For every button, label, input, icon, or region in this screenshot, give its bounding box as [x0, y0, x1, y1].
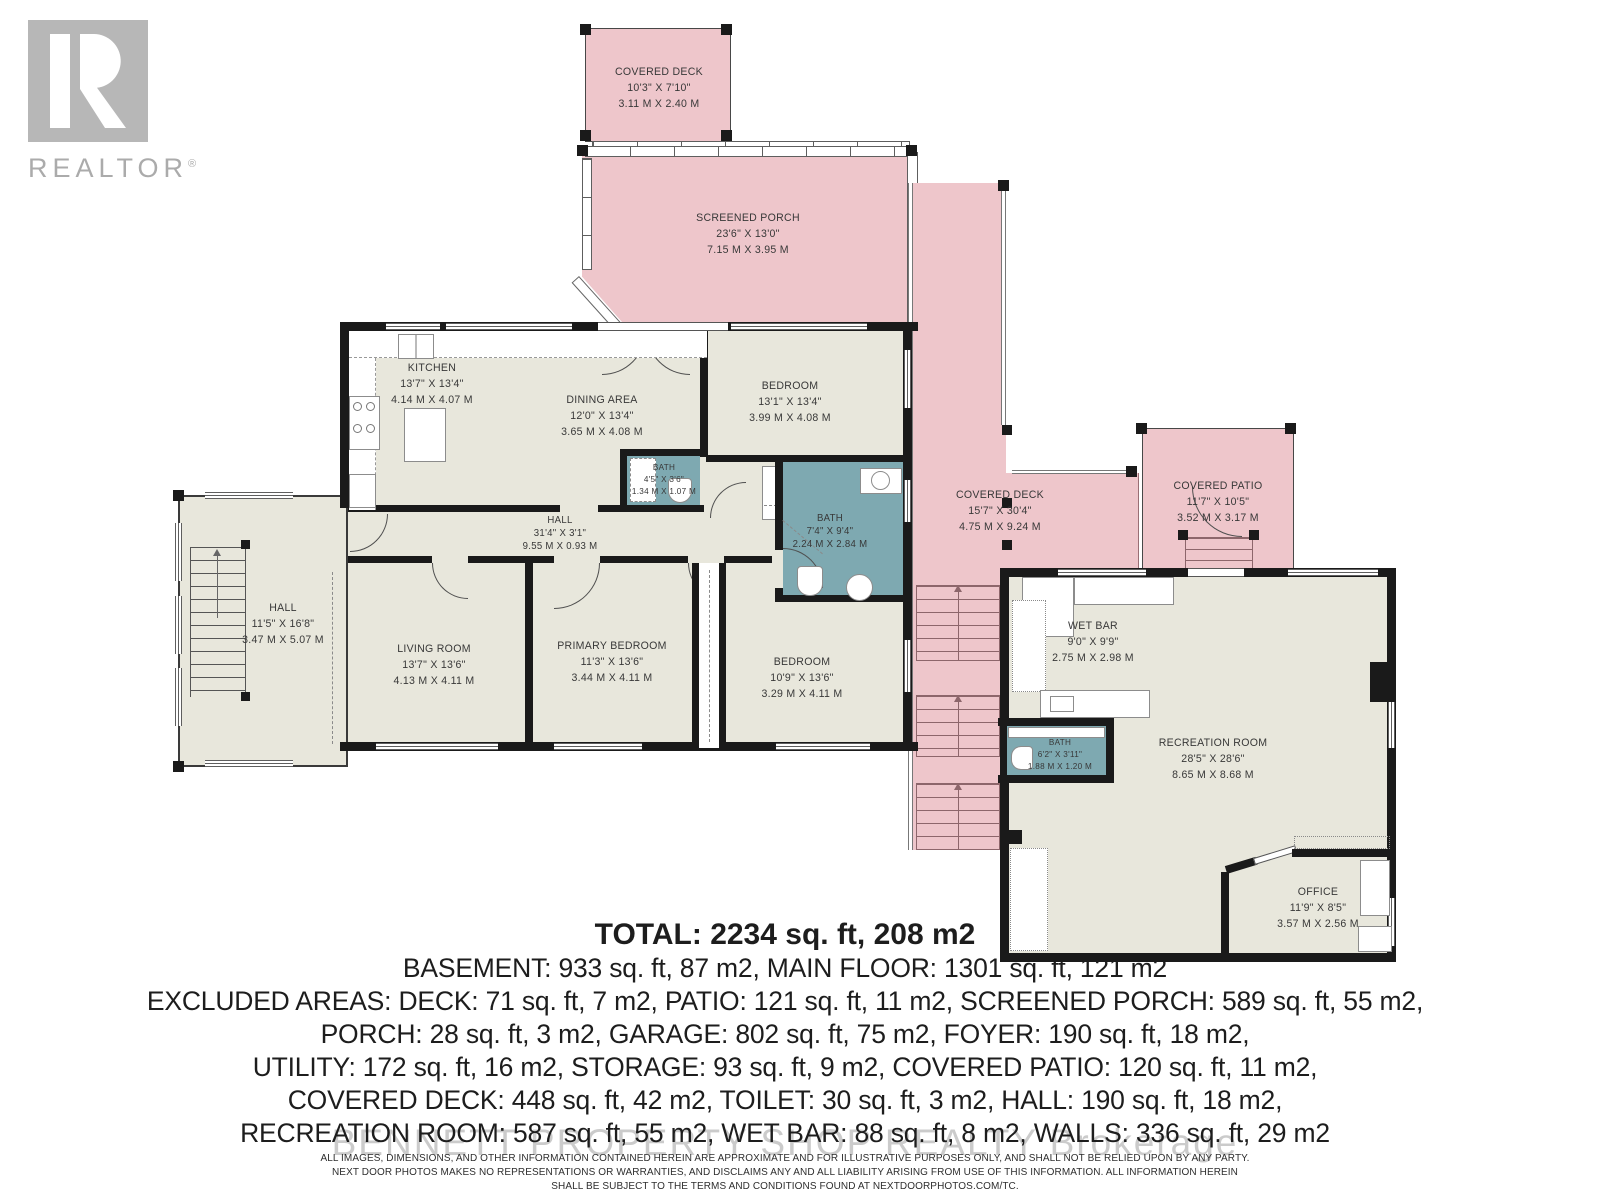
newel-block: [241, 540, 250, 549]
stair-direction-line: [958, 783, 959, 850]
window: [1288, 569, 1378, 576]
room-label-office: OFFICE11'9" X 8'5"3.57 M X 2.56 M: [1277, 884, 1359, 932]
bar-sink-icon: [1050, 696, 1074, 712]
stair-up-arrow-icon: [954, 585, 962, 592]
desk: [1360, 860, 1390, 916]
window: [904, 640, 911, 692]
room-label-kitchen: KITCHEN13'7" X 13'4"4.14 M X 4.07 M: [391, 360, 473, 408]
window-band: [585, 146, 915, 157]
room-label-bath-basement: BATH6'2" X 3'11"1.88 M X 1.20 M: [1028, 736, 1092, 772]
window: [175, 596, 182, 654]
corner-block: [998, 180, 1009, 191]
floor-plan: COVERED DECK10'3" X 7'10"3.11 M X 2.40 M…: [0, 0, 1600, 1200]
closet-rod-line: [709, 570, 710, 742]
kitchen-island: [404, 408, 446, 462]
corner-block: [1136, 423, 1147, 434]
patio-door-opening: [1188, 568, 1244, 577]
room-label-bath-small: BATH4'5" X 3'6"1.34 M X 1.07 M: [632, 461, 696, 497]
wetbar-counter-dashed: [1012, 600, 1046, 692]
fireplace-block: [1370, 662, 1396, 702]
wall-segment: [998, 718, 1113, 726]
corner-block: [906, 145, 917, 156]
corner-block: [580, 130, 591, 141]
floorplan-page: REALTOR® BENNETT PROPERTY SHOP REALTY Br…: [0, 0, 1600, 1200]
room-label-living-room: LIVING ROOM13'7" X 13'6"4.13 M X 4.11 M: [393, 641, 474, 689]
room-label-bedroom-top: BEDROOM13'1" X 13'4"3.99 M X 4.08 M: [749, 378, 831, 426]
room-label-bath-main: BATH7'4" X 9'4"2.24 M X 2.84 M: [793, 512, 868, 551]
deck-edge-line: [1001, 183, 1006, 425]
wall-segment: [620, 449, 627, 512]
stair-up-arrow-icon: [213, 549, 221, 556]
wall-segment: [600, 556, 688, 563]
room-label-recreation-room: RECREATION ROOM28'5" X 28'6"8.65 M X 8.6…: [1159, 735, 1268, 783]
room-label-wet-bar: WET BAR9'0" X 9'9"2.75 M X 2.98 M: [1052, 618, 1134, 666]
corner-block: [1249, 530, 1259, 540]
corner-block: [721, 24, 732, 35]
window: [386, 323, 440, 330]
stair-up-arrow-icon: [954, 695, 962, 702]
floor-break-line: [332, 572, 333, 744]
wall-segment: [348, 556, 432, 563]
wall-segment: [998, 775, 1113, 783]
corner-block: [580, 24, 591, 35]
window: [904, 480, 911, 522]
corner-block: [577, 145, 588, 156]
room-label-bedroom-bottom: BEDROOM10'9" X 13'6"3.29 M X 4.11 M: [761, 654, 842, 702]
wall-segment: [1000, 953, 1396, 962]
window: [205, 492, 293, 499]
wall-segment: [1292, 849, 1396, 857]
wall-segment: [724, 556, 772, 563]
toilet-icon: [797, 566, 823, 596]
wall-segment: [775, 595, 912, 602]
window: [175, 668, 182, 726]
wall-segment: [525, 563, 533, 751]
window: [731, 323, 867, 330]
window: [205, 760, 293, 767]
wall-segment: [348, 505, 560, 512]
wall-segment: [620, 505, 704, 512]
wall-segment: [706, 455, 912, 462]
window: [776, 743, 870, 750]
storage-closet: [1010, 848, 1048, 951]
wall-segment: [719, 563, 726, 751]
stair-up-arrow-icon: [954, 783, 962, 790]
round-basin-icon: [846, 574, 873, 601]
wetbar-counter: [1074, 577, 1174, 605]
deck-edge-line: [1012, 470, 1130, 474]
corner-block: [173, 490, 184, 501]
wall-segment: [620, 449, 704, 456]
room-label-covered-patio: COVERED PATIO11'7" X 10'5"3.52 M X 3.17 …: [1173, 478, 1262, 526]
room-label-covered-deck-right: COVERED DECK15'7" X 30'4"4.75 M X 9.24 M: [956, 487, 1044, 535]
window: [175, 523, 182, 581]
window: [446, 323, 572, 330]
window: [904, 350, 911, 408]
room-label-covered-deck-top: COVERED DECK10'3" X 7'10"3.11 M X 2.40 M: [615, 64, 703, 112]
room-label-hall-left: HALL11'5" X 16'8"3.47 M X 5.07 M: [242, 600, 324, 648]
stair-direction-line: [958, 585, 959, 661]
window-band: [582, 158, 592, 270]
corner-block: [721, 130, 732, 141]
corner-block: [1178, 530, 1188, 540]
corner-block: [1126, 466, 1137, 477]
window: [554, 743, 642, 750]
wall-segment: [775, 455, 783, 550]
wall-segment: [1106, 718, 1114, 783]
burner-icon: [353, 424, 362, 433]
kitchen-sink-icon: [398, 334, 434, 359]
desk: [1358, 926, 1392, 952]
corner-block: [173, 761, 184, 772]
wall-segment: [468, 556, 554, 563]
hall-stairs: [190, 547, 246, 697]
porch-door-opening: [598, 322, 728, 331]
fridge-icon: [349, 474, 376, 508]
room-label-hall-corridor: HALL31'4" X 3'1"9.55 M X 0.93 M: [523, 514, 598, 553]
burner-icon: [366, 402, 375, 411]
wall-segment: [340, 322, 349, 508]
closet-dashed-outline: [1294, 836, 1390, 849]
wall-segment: [1221, 872, 1229, 962]
newel-block: [241, 692, 250, 701]
room-label-primary-bedroom: PRIMARY BEDROOM11'3" X 13'6"3.44 M X 4.1…: [557, 638, 667, 686]
patio-stairs: [1185, 537, 1253, 571]
burner-icon: [366, 424, 375, 433]
window: [1058, 569, 1146, 576]
burner-icon: [353, 402, 362, 411]
deck-patio-divider: [1138, 473, 1139, 573]
wall-segment: [692, 563, 699, 751]
post-block: [1002, 425, 1012, 435]
stair-direction-line: [958, 695, 959, 757]
sink-icon: [871, 471, 890, 490]
window: [376, 743, 498, 750]
room-label-screened-porch: SCREENED PORCH23'6" X 13'0"7.15 M X 3.95…: [696, 210, 800, 258]
post-block: [1002, 540, 1012, 550]
wall-segment: [1000, 830, 1022, 844]
corner-block: [1285, 423, 1296, 434]
room-label-dining-area: DINING AREA12'0" X 13'4"3.65 M X 4.08 M: [561, 392, 643, 440]
stair-direction-line: [217, 556, 218, 618]
